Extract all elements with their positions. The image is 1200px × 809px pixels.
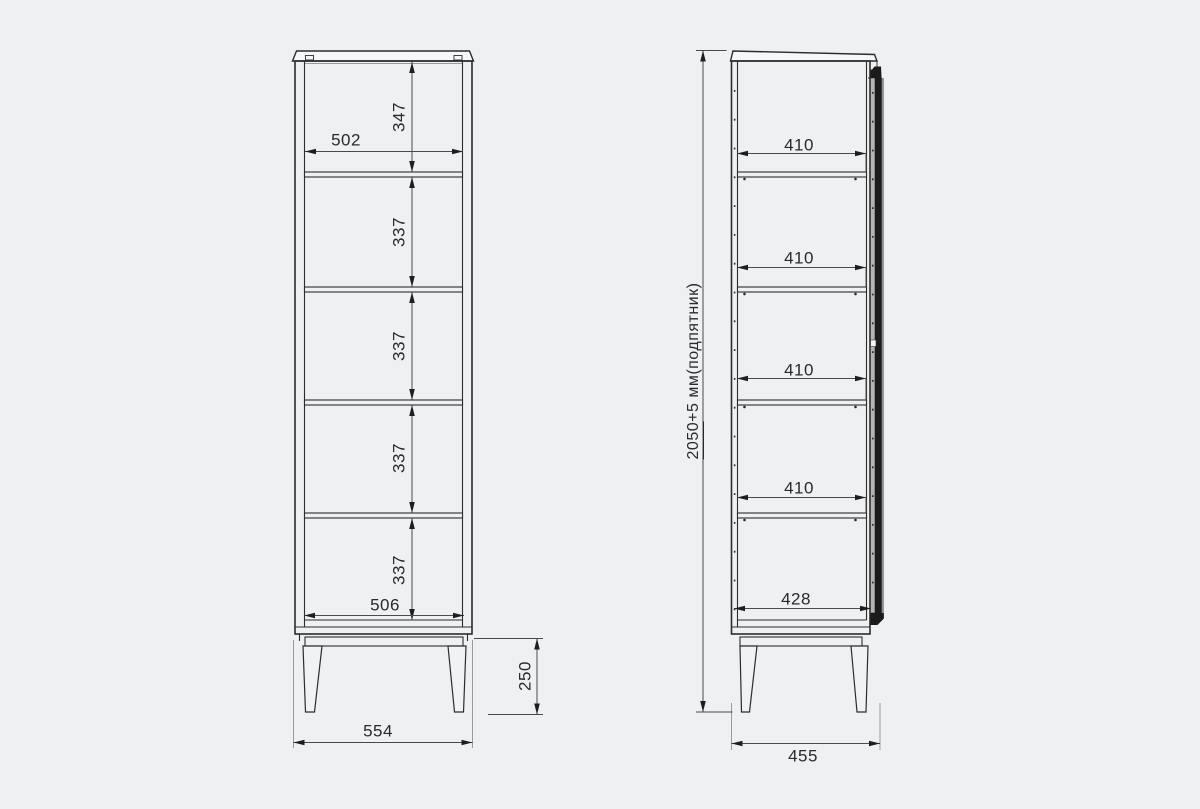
side-shelf-1 xyxy=(738,172,867,177)
dimension-side-shelf-depth-2 xyxy=(737,265,866,287)
side-shelf-4 xyxy=(738,513,867,518)
dim-label-overall-height: 2050+5 мм(подпятник) xyxy=(686,283,702,460)
dim-label-shelf-depth-4: 410 xyxy=(784,480,814,497)
door-hinge-mark xyxy=(871,340,876,347)
side-top-panel xyxy=(731,51,878,61)
dim-label-section-height-3: 337 xyxy=(391,331,408,361)
front-leg-left xyxy=(303,646,322,712)
front-shelf-1 xyxy=(305,172,463,177)
front-shelf-4 xyxy=(305,513,463,518)
technical-drawing-canvas: 347 337 337 337 337 502 506 554 250 410 … xyxy=(0,0,1200,809)
dim-label-overall-depth: 455 xyxy=(788,748,818,765)
dimension-front-section-chain xyxy=(409,62,415,620)
side-shelf-2 xyxy=(738,287,867,292)
dim-label-leg-height: 250 xyxy=(517,661,534,691)
overall-height-suffix: +5 мм(подпятник) xyxy=(685,283,702,422)
side-door-profile xyxy=(871,67,884,626)
overall-height-value: 2050 xyxy=(685,422,704,460)
front-leg-right xyxy=(448,646,466,712)
dim-label-section-height-2: 337 xyxy=(391,217,408,247)
dim-label-inner-width-bottom: 506 xyxy=(370,597,400,614)
dim-label-shelf-depth-1: 410 xyxy=(784,137,814,154)
dimension-front-inner-width-top xyxy=(305,149,463,155)
side-leg-right xyxy=(851,646,868,712)
dim-label-shelf-depth-2: 410 xyxy=(784,250,814,267)
dim-label-inner-depth-bottom: 428 xyxy=(781,591,811,608)
side-plinth-rail xyxy=(740,637,862,646)
dim-label-inner-width-top: 502 xyxy=(331,132,361,149)
dim-label-overall-width: 554 xyxy=(363,723,393,740)
dim-label-section-height-5: 337 xyxy=(391,555,408,585)
dim-label-section-height-4: 337 xyxy=(391,443,408,473)
cabinet-drawing-svg xyxy=(0,0,1200,809)
front-shelf-3 xyxy=(305,400,463,405)
side-shelf-3 xyxy=(738,400,867,405)
dim-label-shelf-depth-3: 410 xyxy=(784,362,814,379)
front-top-panel xyxy=(293,51,474,61)
front-shelf-2 xyxy=(305,287,463,292)
side-leg-left xyxy=(740,646,757,712)
dim-label-section-height-1: 347 xyxy=(391,102,408,132)
front-carcass xyxy=(295,61,472,634)
front-plinth-rail xyxy=(305,637,463,646)
